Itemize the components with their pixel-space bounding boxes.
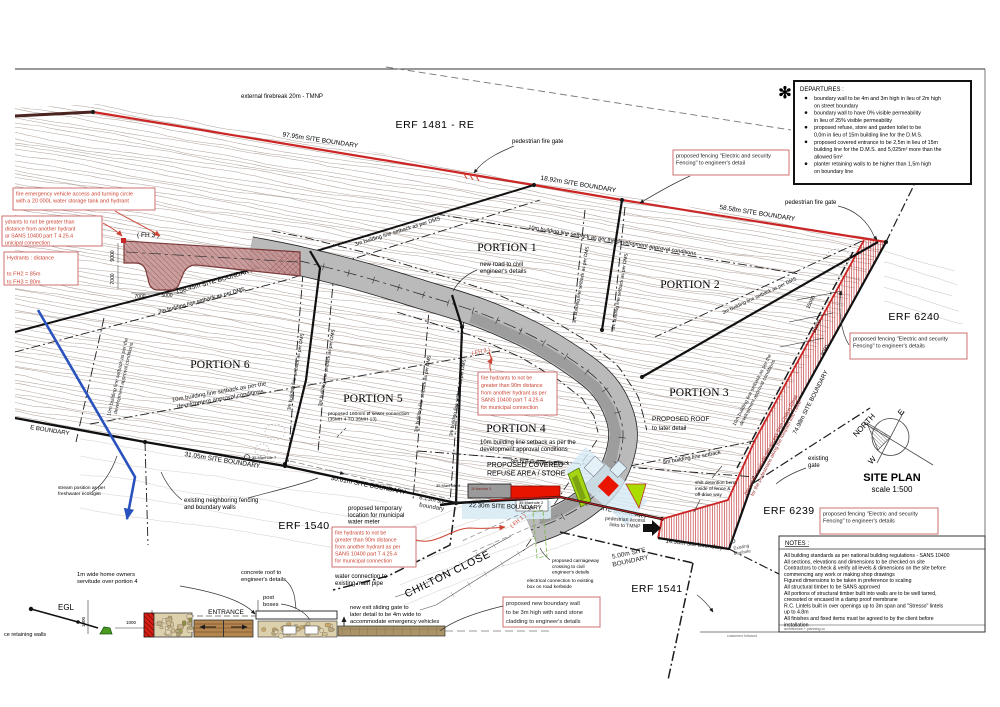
svg-text:existing: existing <box>808 456 828 462</box>
svg-text:greater than 90m distance: greater than 90m distance <box>335 538 397 544</box>
svg-text:ERF 1481 - RE: ERF 1481 - RE <box>396 119 475 131</box>
svg-text:in lieu of 25% visible permeab: in lieu of 25% visible permeability <box>814 118 892 124</box>
svg-text:customers followed: customers followed <box>727 634 757 638</box>
svg-text:water connection to: water connection to <box>334 574 388 580</box>
svg-text:ERF 6240: ERF 6240 <box>888 311 939 323</box>
svg-text:allowed 5m²: allowed 5m² <box>814 154 843 160</box>
svg-text:engineer's details: engineer's details <box>480 269 527 275</box>
svg-text:All finishes and fixed items m: All finishes and fixed items must be agr… <box>784 616 934 622</box>
svg-text:R.C. Lintels built in over ope: R.C. Lintels built in over openings up t… <box>784 603 944 609</box>
svg-text:pedestrian fire gate: pedestrian fire gate <box>512 139 564 145</box>
svg-text:pedestrian fire gate: pedestrian fire gate <box>785 200 837 206</box>
svg-text:fire hydrants to not be: fire hydrants to not be <box>335 531 386 537</box>
svg-text:proposed fencing "Electric and: proposed fencing "Electric and security <box>853 337 948 343</box>
svg-text:building line for the D.M.S. a: building line for the D.M.S. and 5,025m²… <box>814 147 942 153</box>
svg-text:planter retaining walls to be: planter retaining walls to be higher tha… <box>814 162 931 168</box>
svg-text:proposed fencing "Electric and: proposed fencing "Electric and security <box>676 154 771 160</box>
svg-text:unicipal connection: unicipal connection <box>5 241 50 247</box>
svg-text:with a 20 000L water storage t: with a 20 000L water storage tank and hy… <box>15 198 129 204</box>
svg-text:electrical connection to exist: electrical connection to existing <box>527 578 594 584</box>
svg-text:1m wide home owners: 1m wide home owners <box>77 572 135 578</box>
svg-text:SANS 10400 part T 4.25.4: SANS 10400 part T 4.25.4 <box>481 398 543 404</box>
svg-text:1000: 1000 <box>81 616 86 627</box>
svg-text:5000: 5000 <box>161 293 172 299</box>
svg-text:for municipal connection: for municipal connection <box>481 405 538 411</box>
svg-text:All portions of structural tim: All portions of structural timber built … <box>784 591 937 597</box>
svg-text:ydrants to not be greater than: ydrants to not be greater than <box>5 220 75 226</box>
svg-text:gate: gate <box>808 463 820 469</box>
svg-text:ar SANS 10400 part T 4.25.4: ar SANS 10400 part T 4.25.4 <box>5 234 73 240</box>
svg-text:existing neighboring fencing: existing neighboring fencing <box>184 498 258 504</box>
svg-text:10m building line setback as p: 10m building line setback as per the <box>480 440 576 446</box>
svg-text:PORTION 3: PORTION 3 <box>669 387 729 399</box>
svg-text:DEPARTURES :: DEPARTURES : <box>800 87 844 93</box>
svg-text:NOTES :: NOTES : <box>785 541 809 547</box>
svg-text:PORTION 2: PORTION 2 <box>660 279 720 291</box>
svg-text:and boundary walls: and boundary walls <box>184 505 236 511</box>
svg-text:greater than 90m distance: greater than 90m distance <box>481 383 543 389</box>
svg-text:ENTRANCE: ENTRANCE <box>208 609 244 616</box>
svg-text:proposed temporary: proposed temporary <box>348 506 402 512</box>
svg-text:ce retaining walls: ce retaining walls <box>4 632 46 638</box>
svg-text:from another hydrant as per: from another hydrant as per <box>335 545 401 551</box>
svg-text:architecture + planning cc: architecture + planning cc <box>784 627 825 631</box>
svg-text:development approval condition: development approval conditions <box>480 447 568 453</box>
svg-text:location for municipal: location for municipal <box>348 513 404 519</box>
svg-text:fire emergency vehicle access: fire emergency vehicle access and turnin… <box>16 192 133 198</box>
svg-text:Fencing" to engineer's details: Fencing" to engineer's details <box>853 343 925 349</box>
svg-text:ERF 1541: ERF 1541 <box>631 583 682 595</box>
svg-text:Contractors to check & verify: Contractors to check & verify all levels… <box>784 566 946 572</box>
svg-text:PORTION 1: PORTION 1 <box>477 242 537 254</box>
svg-text:accommodate emergency vehicles: accommodate emergency vehicles <box>350 619 439 625</box>
svg-text:Figured dimensions to be taken: Figured dimensions to be taken in prefer… <box>784 578 912 584</box>
svg-text:All sections, elevations and d: All sections, elevations and dimensions … <box>784 559 925 565</box>
svg-text:proposed carriageway: proposed carriageway <box>552 558 600 564</box>
svg-text:boundary wall to be 4m and 3m: boundary wall to be 4m and 3m high in li… <box>814 96 941 102</box>
svg-text:Fencing" to engineer's details: Fencing" to engineer's details <box>823 518 895 524</box>
svg-text:freshwater ecologist: freshwater ecologist <box>58 491 101 497</box>
svg-text:7000: 7000 <box>110 273 116 284</box>
svg-text:to be 3m high with sand stone: to be 3m high with sand stone <box>506 610 583 616</box>
svg-text:water meter: water meter <box>347 520 380 526</box>
svg-text:PORTION 6: PORTION 6 <box>190 359 250 371</box>
svg-text:inside of fence &: inside of fence & <box>695 486 731 492</box>
svg-text:existing main pipe: existing main pipe <box>335 581 384 587</box>
svg-text:new road to civil: new road to civil <box>480 262 523 268</box>
svg-text:9000: 9000 <box>110 250 116 261</box>
svg-text:PROPOSED COVERED: PROPOSED COVERED <box>487 462 563 469</box>
svg-text:7000: 7000 <box>134 294 145 300</box>
svg-text:to FH2 = 85m: to FH2 = 85m <box>7 272 41 278</box>
svg-text:engineer's details: engineer's details <box>241 577 286 583</box>
svg-text:for municipal connection: for municipal connection <box>335 559 392 565</box>
svg-text:EGL: EGL <box>58 603 75 612</box>
svg-text:SITE PLAN: SITE PLAN <box>863 472 921 484</box>
svg-text:engineer's details: engineer's details <box>552 570 590 576</box>
svg-text:creosoted or encased in a damp: creosoted or encased in a damp proof mem… <box>784 597 898 603</box>
svg-text:to later detail: to later detail <box>652 426 686 432</box>
svg-text:All structural timber to be SA: All structural timber to be SANS approve… <box>784 585 880 591</box>
svg-text:boundary wall to have 0% visib: boundary wall to have 0% visible permeab… <box>814 111 921 117</box>
svg-text:servitude over portion 4: servitude over portion 4 <box>77 579 138 585</box>
svg-text:crossing to civil: crossing to civil <box>552 564 585 570</box>
svg-text:ERF 1540: ERF 1540 <box>278 520 329 532</box>
svg-text:on street boundary: on street boundary <box>814 103 859 109</box>
svg-text:up to 4.8m: up to 4.8m <box>784 610 809 616</box>
svg-text:proposed new boundary wall: proposed new boundary wall <box>506 601 580 607</box>
svg-text:All building standards as per: All building standards as per national b… <box>784 553 950 559</box>
svg-text:commencing any work or making: commencing any work or making shop drawi… <box>784 572 895 578</box>
svg-text:Hydrants : distance: Hydrants : distance <box>7 256 54 262</box>
svg-text:proposed refuse, store and gar: proposed refuse, store and garden toilet… <box>814 125 921 131</box>
svg-text:0,0m in lieu of 15m building l: 0,0m in lieu of 15m building line for th… <box>814 133 922 139</box>
svg-text:PROPOSED ROOF: PROPOSED ROOF <box>652 416 709 423</box>
svg-text:shilt detention berm: shilt detention berm <box>695 480 737 486</box>
svg-text:distance from another hydrant: distance from another hydrant <box>5 227 76 233</box>
svg-text:35 Manhole 3: 35 Manhole 3 <box>471 487 491 491</box>
svg-text:on boundary line: on boundary line <box>814 169 853 175</box>
svg-text:proposed covered entrance to b: proposed covered entrance to be 2,5m in … <box>814 140 939 146</box>
svg-text:scale 1:500: scale 1:500 <box>872 485 913 494</box>
svg-text:PORTION 5: PORTION 5 <box>343 393 403 405</box>
svg-text:new exit sliding gate to: new exit sliding gate to <box>350 605 409 611</box>
svg-text:boxes: boxes <box>263 602 279 608</box>
svg-text:external firebreak 20m - TMNP: external firebreak 20m - TMNP <box>241 94 323 100</box>
svg-text:concrete roof to: concrete roof to <box>241 570 281 576</box>
svg-text:cladding to engineer's details: cladding to engineer's details <box>506 619 581 625</box>
svg-text:to FH3 = 80m: to FH3 = 80m <box>7 280 41 286</box>
svg-text:proposed 160mm Ø sewer connect: proposed 160mm Ø sewer connection <box>328 411 409 417</box>
svg-text:Fencing" to engineer's detail: Fencing" to engineer's detail <box>676 160 745 166</box>
svg-text:35 Manhole 4: 35 Manhole 4 <box>436 483 461 488</box>
svg-text:1000: 1000 <box>126 620 137 625</box>
svg-text:35 Manhole 7: 35 Manhole 7 <box>252 455 277 460</box>
svg-text:from another hydrant as per: from another hydrant as per <box>481 390 547 396</box>
svg-text:stream position as per: stream position as per <box>58 485 106 491</box>
svg-text:SANS 10400 part T 4.25.4: SANS 10400 part T 4.25.4 <box>335 552 397 558</box>
svg-text:later detail to be 4m wide to: later detail to be 4m wide to <box>350 612 421 618</box>
svg-text:ERF 6239: ERF 6239 <box>763 505 814 517</box>
svg-text:post: post <box>263 595 274 601</box>
svg-text:PORTION 4: PORTION 4 <box>486 423 546 435</box>
svg-text:REFUSE AREA / STORE: REFUSE AREA / STORE <box>487 470 566 477</box>
svg-text:box on road kerbside: box on road kerbside <box>527 584 572 590</box>
svg-text:fire hydrants to not be: fire hydrants to not be <box>481 376 532 382</box>
svg-text:✻: ✻ <box>778 85 791 102</box>
svg-text:proposed fencing "Electric and: proposed fencing "Electric and security <box>823 512 918 518</box>
svg-text:(35MH 4 TO 35MH 13): (35MH 4 TO 35MH 13) <box>328 417 377 423</box>
svg-text:off drive way: off drive way <box>695 492 722 498</box>
